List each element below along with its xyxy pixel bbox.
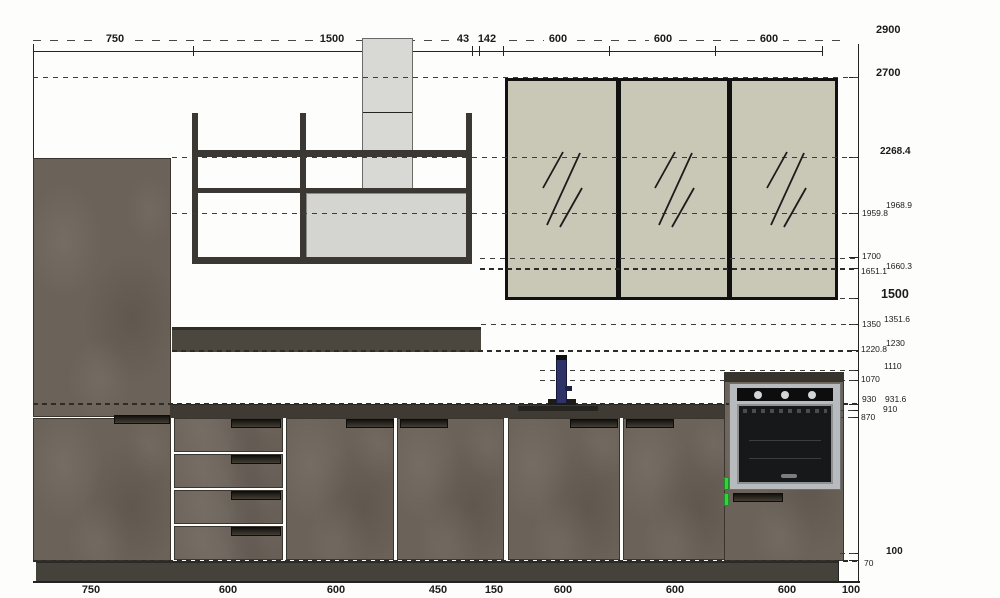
dim-label-right: 2900 xyxy=(876,24,900,36)
dim-label-right: 1651.1 xyxy=(861,266,887,276)
oven-housing-top xyxy=(724,372,844,382)
right-ruler xyxy=(858,44,859,582)
dim-label-right: 2268.4 xyxy=(880,146,911,157)
base-door-3[interactable] xyxy=(508,418,620,560)
base-door-1-handle[interactable] xyxy=(346,419,394,428)
dim-tick xyxy=(193,46,194,56)
oven-knob[interactable] xyxy=(808,391,816,399)
base-door-2[interactable] xyxy=(397,418,504,560)
dim-label-right: 70 xyxy=(864,558,873,568)
dim-label-right: 2700 xyxy=(876,67,900,79)
drawer-handle[interactable] xyxy=(231,491,281,500)
oven-glass-line xyxy=(749,458,821,459)
dim-label-bottom: 150 xyxy=(476,584,512,596)
level-line-70 xyxy=(33,560,858,562)
dim-label-right: 1959.8 xyxy=(862,208,888,218)
glass-reflection-icon xyxy=(760,148,820,230)
dim-label-bottom: 600 xyxy=(769,584,805,596)
floating-shelf[interactable] xyxy=(172,327,481,352)
sink-cabinet-handle[interactable] xyxy=(626,419,674,428)
level-line-2268 xyxy=(172,157,858,158)
shelf-board-bottom[interactable] xyxy=(192,257,472,264)
dim-label-bottom: 600 xyxy=(657,584,693,596)
range-hood-chimney[interactable] xyxy=(362,38,413,194)
faucet-cap xyxy=(556,355,567,360)
chimney-seam xyxy=(363,112,412,113)
dim-label-right: 870 xyxy=(861,412,875,422)
dim-line-top-solid xyxy=(33,51,822,52)
dim-label-bottom: 450 xyxy=(420,584,456,596)
plinth-end-line xyxy=(838,560,839,582)
faucet-spout xyxy=(565,386,572,391)
selection-mark-green xyxy=(724,477,729,490)
faucet[interactable] xyxy=(556,358,567,404)
dim-label-bottom: 600 xyxy=(545,584,581,596)
dim-label-top: 600 xyxy=(755,33,783,45)
level-line-1500 xyxy=(840,298,858,299)
sink[interactable] xyxy=(518,406,598,411)
dim-label-top: 600 xyxy=(649,33,677,45)
base-door-1[interactable] xyxy=(286,418,394,560)
oven[interactable] xyxy=(729,383,841,490)
level-line-100 xyxy=(840,553,858,554)
level-line-1959 xyxy=(172,213,858,214)
oven-drawer-handle[interactable] xyxy=(733,493,783,502)
oven-knob[interactable] xyxy=(754,391,762,399)
level-line-870 xyxy=(838,417,858,418)
dim-label-bottom: 600 xyxy=(318,584,354,596)
selection-mark-green xyxy=(724,493,729,506)
drawer-handle[interactable] xyxy=(231,455,281,464)
elevation-drawing: 750 1500 43 142 600 600 600 2900 2700 22… xyxy=(0,0,1000,598)
level-line-1230 xyxy=(172,350,858,352)
dim-label-right: 1230 xyxy=(886,338,905,348)
level-line-910 xyxy=(838,410,858,411)
level-line-1651 xyxy=(480,268,858,270)
dim-label-right: 1660.3 xyxy=(886,261,912,271)
level-line-1350 xyxy=(481,324,858,325)
glass-reflection-icon xyxy=(536,148,596,230)
dim-label-bottom: 100 xyxy=(833,584,869,596)
dim-tick xyxy=(479,46,480,56)
dim-label-right: 1110 xyxy=(884,361,902,371)
dim-label-right: 1070 xyxy=(861,374,880,384)
level-line-2700 xyxy=(33,77,858,78)
dim-tick xyxy=(609,46,610,56)
shelf-board-middle[interactable] xyxy=(192,188,472,193)
drawer-handle[interactable] xyxy=(231,527,281,536)
dim-label-top: 600 xyxy=(544,33,572,45)
dim-label-top: 142 xyxy=(473,33,501,45)
base-door-2-handle[interactable] xyxy=(400,419,448,428)
shelf-board-top[interactable] xyxy=(192,150,472,157)
dim-tick xyxy=(715,46,716,56)
dim-label-right: 100 xyxy=(886,546,903,557)
drawer-handle[interactable] xyxy=(231,419,281,428)
countertop[interactable] xyxy=(170,404,726,418)
oven-door[interactable] xyxy=(737,404,833,484)
dim-tick xyxy=(503,46,504,56)
dim-label-right: 1500 xyxy=(881,287,909,301)
dim-label-top: 750 xyxy=(101,33,129,45)
sink-cabinet-door[interactable] xyxy=(623,418,730,560)
tall-cabinet-upper-door[interactable] xyxy=(33,158,171,417)
dim-label-right: 931.6 xyxy=(885,394,906,404)
dim-label-right: 930 xyxy=(862,394,876,404)
oven-brand-logo xyxy=(781,474,797,478)
oven-knob[interactable] xyxy=(781,391,789,399)
dim-label-right: 910 xyxy=(883,404,897,414)
floor-line xyxy=(33,581,860,583)
tall-cabinet-lower-door[interactable] xyxy=(33,418,171,561)
oven-vent-dots xyxy=(743,409,827,413)
tall-cabinet-handle[interactable] xyxy=(114,415,170,424)
dim-label-top: 43 xyxy=(452,33,474,45)
dim-label-right: 1220.8 xyxy=(861,344,887,354)
plinth xyxy=(36,561,838,581)
wall-line-left xyxy=(33,44,34,158)
dim-tick xyxy=(472,46,473,56)
dim-label-right: 1351.6 xyxy=(884,314,910,324)
dim-label-bottom: 750 xyxy=(73,584,109,596)
dim-label-right: 1700 xyxy=(862,251,881,261)
dim-label-bottom: 600 xyxy=(210,584,246,596)
dim-label-right: 1968.9 xyxy=(886,200,912,210)
dim-tick xyxy=(822,46,823,56)
base-door-3-handle[interactable] xyxy=(570,419,618,428)
level-line-1110 xyxy=(540,370,858,371)
dim-line-top-dashed xyxy=(33,40,845,41)
oven-glass-line xyxy=(749,440,821,441)
range-hood-body[interactable] xyxy=(306,193,468,259)
dim-label-right: 1350 xyxy=(862,319,881,329)
dim-label-top: 1500 xyxy=(313,33,351,45)
level-line-1700 xyxy=(480,258,858,259)
glass-reflection-icon xyxy=(648,148,708,230)
